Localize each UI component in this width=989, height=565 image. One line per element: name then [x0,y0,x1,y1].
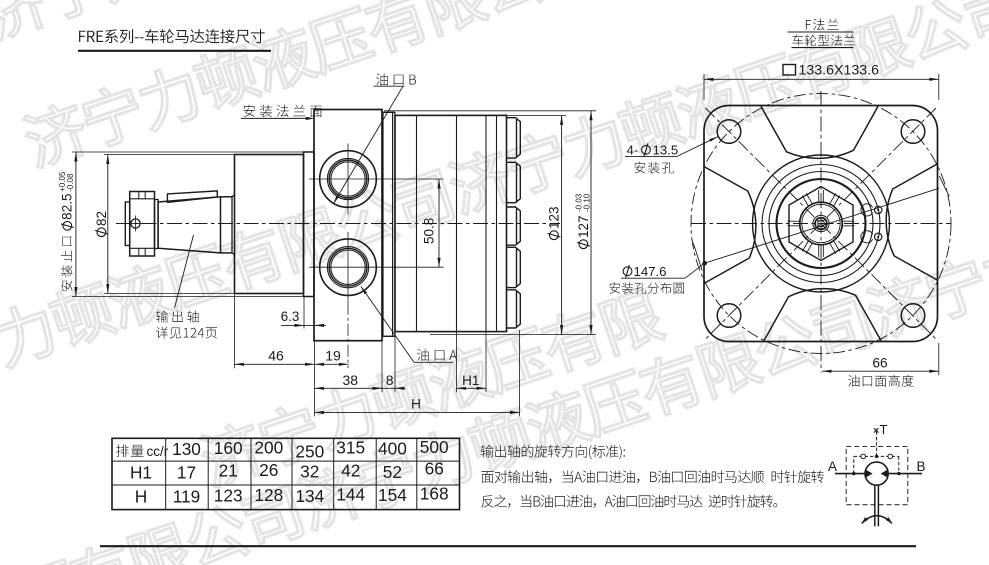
svg-text:160: 160 [214,438,243,458]
svg-text:17: 17 [177,463,196,483]
svg-text:200: 200 [254,438,283,458]
svg-text:cc/r: cc/r [147,444,169,459]
svg-text:66: 66 [425,459,444,479]
svg-text:50.8: 50.8 [422,218,437,244]
svg-text:315: 315 [336,438,365,458]
svg-text:32: 32 [300,462,319,482]
svg-text:42: 42 [341,461,360,481]
svg-text:6.3: 6.3 [281,309,300,324]
svg-text:154: 154 [378,485,407,505]
svg-text:B: B [917,459,926,474]
svg-text:H: H [411,397,421,412]
svg-text:21: 21 [219,461,238,481]
svg-text:144: 144 [336,485,365,505]
svg-text:-0.08: -0.08 [66,173,75,192]
svg-text:66: 66 [872,356,887,371]
svg-text:A: A [828,459,837,474]
svg-text:127: 127 [576,215,591,238]
svg-text:38: 38 [343,372,359,388]
svg-text:133.6X133.6: 133.6X133.6 [799,63,880,79]
svg-text:19: 19 [325,348,341,364]
svg-text:500: 500 [420,437,449,457]
svg-text:400: 400 [378,439,407,459]
svg-text:130: 130 [172,439,201,459]
svg-text:-0.10: -0.10 [583,193,592,212]
svg-text:H: H [135,487,147,507]
svg-text:82.5: 82.5 [60,194,75,220]
svg-text:H1: H1 [130,463,152,483]
svg-text:26: 26 [259,460,278,480]
svg-text:250: 250 [295,442,324,462]
svg-text:119: 119 [173,487,201,507]
svg-text:128: 128 [254,485,283,505]
svg-text:82: 82 [94,211,109,226]
svg-text:13.5: 13.5 [653,143,679,158]
svg-text:147.6: 147.6 [634,264,667,279]
svg-text:4-: 4- [627,143,639,158]
svg-text:8: 8 [386,372,394,388]
svg-text:52: 52 [383,462,402,482]
svg-text:168: 168 [420,484,449,504]
svg-text:134: 134 [295,486,324,506]
svg-text:123: 123 [547,206,562,229]
svg-text:T: T [880,422,888,437]
svg-text:H1: H1 [462,373,479,388]
svg-text:123: 123 [214,486,243,506]
svg-text:46: 46 [268,348,284,364]
